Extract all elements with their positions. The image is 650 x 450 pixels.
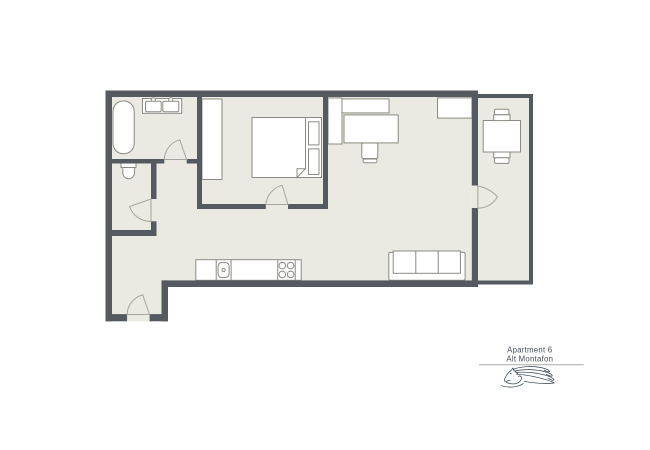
svg-text:Alt Montafon: Alt Montafon xyxy=(506,354,553,363)
svg-text:Apartment 6: Apartment 6 xyxy=(507,345,552,354)
